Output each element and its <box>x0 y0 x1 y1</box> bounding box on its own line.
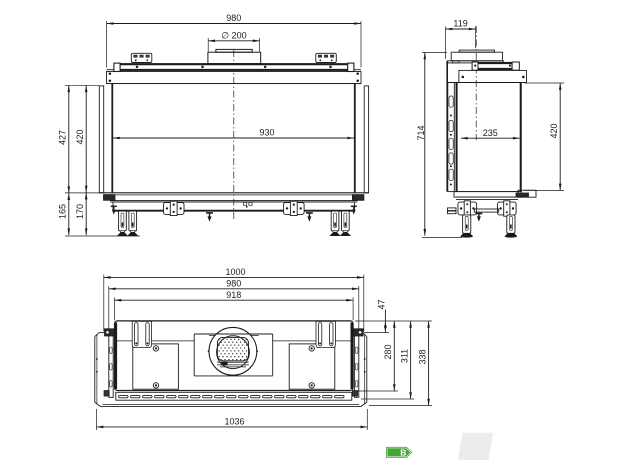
svg-text:235: 235 <box>483 128 498 138</box>
svg-text:930: 930 <box>259 128 274 138</box>
svg-text:170: 170 <box>75 204 85 219</box>
svg-text:47: 47 <box>377 299 387 309</box>
svg-text:1000: 1000 <box>225 267 245 277</box>
svg-text:119: 119 <box>453 19 467 29</box>
svg-text:1036: 1036 <box>224 417 244 427</box>
svg-text:980: 980 <box>226 279 241 289</box>
svg-text:980: 980 <box>226 13 241 23</box>
svg-text:311: 311 <box>399 349 409 363</box>
svg-text:∅ 200: ∅ 200 <box>221 31 246 41</box>
svg-text:420: 420 <box>75 129 85 144</box>
svg-text:420: 420 <box>549 123 559 138</box>
svg-text:427: 427 <box>58 130 68 145</box>
svg-text:714: 714 <box>416 125 426 140</box>
svg-text:165: 165 <box>58 204 68 219</box>
svg-text:B: B <box>400 447 406 457</box>
svg-text:338: 338 <box>417 349 427 364</box>
svg-text:918: 918 <box>226 290 241 300</box>
svg-text:280: 280 <box>383 344 393 359</box>
